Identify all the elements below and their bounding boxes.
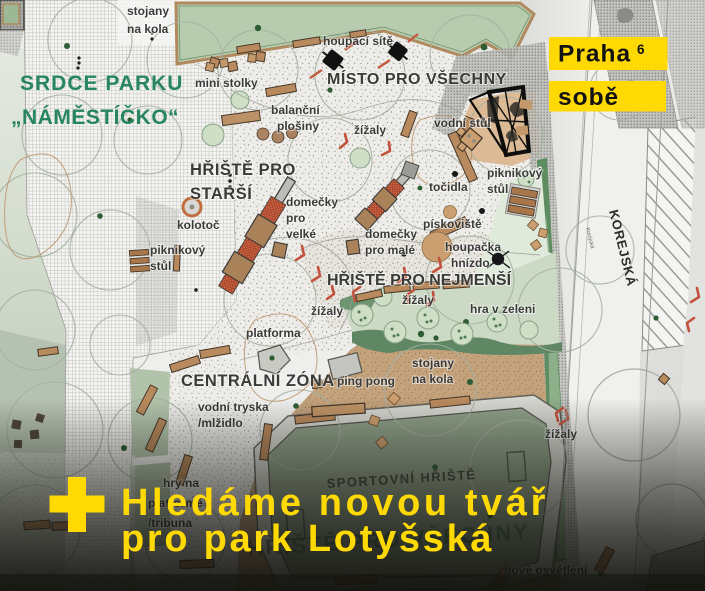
svg-text:MÍSTO PRO VŠECHNY: MÍSTO PRO VŠECHNY [327,69,507,88]
svg-text:mini stolky: mini stolky [195,76,258,90]
svg-text:pro: pro [286,211,305,225]
svg-text:na kola: na kola [412,372,454,386]
svg-text:vodní stůl: vodní stůl [434,116,491,130]
svg-text:pískoviště: pískoviště [423,217,482,231]
svg-text:stojany: stojany [412,356,454,370]
svg-text:STARŠÍ: STARŠÍ [190,184,252,203]
svg-text:houpací sítě: houpací sítě [323,34,393,48]
svg-text:domečky: domečky [365,227,417,241]
svg-text:6: 6 [637,42,645,57]
svg-text:hnízdo: hnízdo [451,256,490,270]
svg-text:kolotoč: kolotoč [177,218,220,232]
svg-text:ping pong: ping pong [337,374,395,388]
svg-text:piknikový: piknikový [150,243,206,257]
svg-text:CENTRÁLNÍ ZÓNA: CENTRÁLNÍ ZÓNA [181,371,335,390]
svg-text:stůl: stůl [487,182,508,196]
svg-text:balanční: balanční [271,103,320,117]
svg-text:„NÁMĚSTÍČKO“: „NÁMĚSTÍČKO“ [11,105,179,129]
svg-text:pro park Lotyšská: pro park Lotyšská [121,518,494,560]
svg-text:Praha: Praha [558,41,631,68]
svg-text:SRDCE PARKU: SRDCE PARKU [20,72,183,95]
svg-text:žížaly: žížaly [402,293,434,307]
svg-text:na kola: na kola [127,22,169,36]
svg-text:plošiny: plošiny [277,119,319,133]
svg-text:piknikový: piknikový [487,166,543,180]
svg-text:stojany: stojany [127,4,169,18]
svg-text:HŘIŠTĚ PRO NEJMENŠÍ: HŘIŠTĚ PRO NEJMENŠÍ [327,270,512,289]
svg-text:hra v zeleni: hra v zeleni [470,302,535,316]
svg-text:sobě: sobě [558,84,619,111]
svg-text:točidla: točidla [429,180,468,194]
svg-text:houpačka: houpačka [445,240,501,254]
svg-text:velké: velké [286,227,316,241]
svg-text:stůl: stůl [150,259,171,273]
svg-text:platforma: platforma [246,326,301,340]
svg-text:domečky: domečky [286,195,338,209]
svg-text:žížaly: žížaly [311,304,343,318]
svg-text:pro malé: pro malé [365,243,415,257]
svg-text:HŘIŠTĚ PRO: HŘIŠTĚ PRO [190,160,296,179]
svg-text:žížaly: žížaly [354,123,386,137]
